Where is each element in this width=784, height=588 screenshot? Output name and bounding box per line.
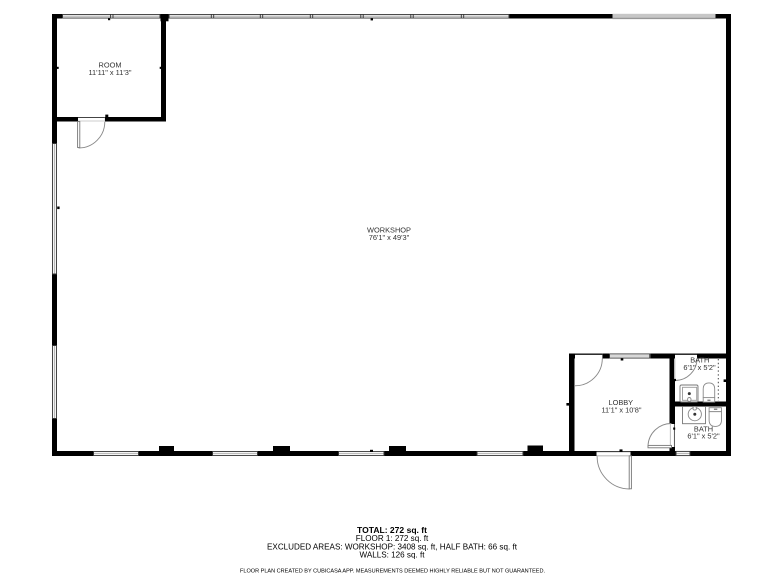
svg-text:6'1" x 5'2": 6'1" x 5'2" [687,432,720,441]
svg-text:76'1" x 49'3": 76'1" x 49'3" [369,233,410,242]
svg-text:WALLS: 126 sq. ft: WALLS: 126 sq. ft [360,551,426,560]
svg-text:FLOOR PLAN CREATED BY CUBICASA: FLOOR PLAN CREATED BY CUBICASA APP. MEAS… [240,568,546,574]
svg-text:11'1" x 10'8": 11'1" x 10'8" [602,405,642,414]
svg-text:6'1" x 5'2": 6'1" x 5'2" [683,363,716,372]
svg-text:11'11" x 11'3": 11'11" x 11'3" [89,68,132,77]
